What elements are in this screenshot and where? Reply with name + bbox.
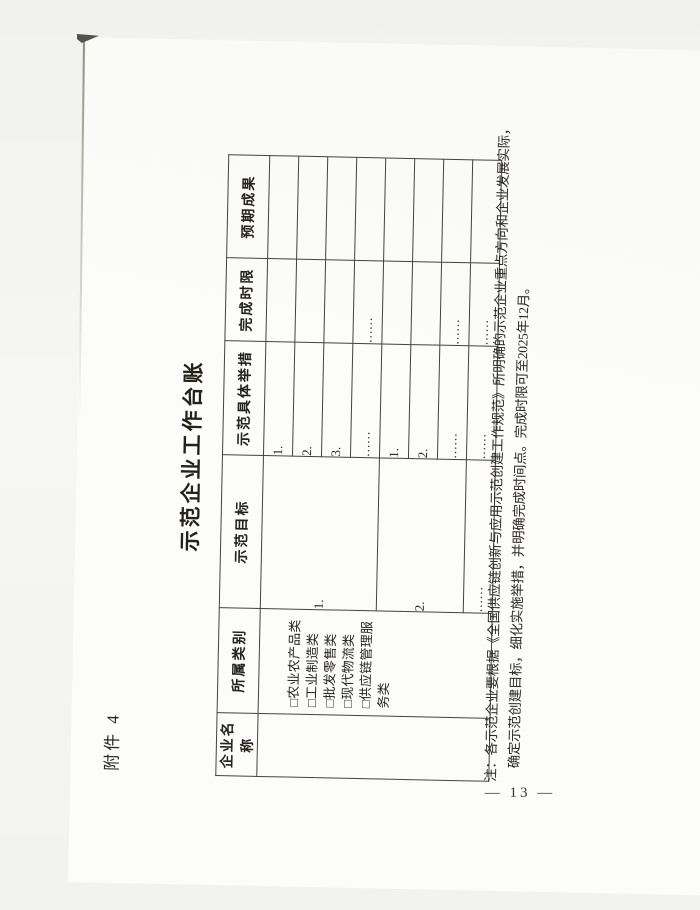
col-header-measures: 示范具体举措 [222, 341, 265, 456]
page-title: 示范企业工作台账 [169, 135, 212, 775]
expected-result-cell [326, 157, 357, 261]
category-option-scm-service: □供应链管理服务类 [357, 611, 395, 709]
category-cell: □农业农产品类 □工业制造类 □批发零售类 □现代物流类 □供应链管理服务类 [258, 608, 492, 718]
measure-cell: 1. [263, 342, 294, 457]
expected-result-cell [413, 159, 444, 263]
goal-1-cell: 1. [260, 456, 379, 611]
expected-result-cell [384, 158, 415, 262]
col-header-goal: 示范目标 [219, 455, 263, 609]
col-header-expected-results: 预期成果 [227, 155, 270, 259]
col-header-enterprise-name: 企业名称 [216, 713, 258, 777]
page-number: — 13 — [452, 785, 588, 802]
col-header-category: 所属类别 [217, 608, 260, 714]
category-option-wholesale-retail: □批发零售类 [321, 610, 341, 707]
scanned-document-canvas: 附件 4 示范企业工作台账 企业名称 所属类别 示范目标 示范具体举措 完成时限… [0, 0, 700, 910]
expected-result-cell [442, 159, 473, 263]
measure-cell: …… [350, 343, 381, 458]
measure-cell: …… [437, 345, 468, 460]
deadline-cell [411, 262, 442, 346]
expected-result-cell [297, 156, 328, 260]
measure-cell: 2. [408, 345, 439, 460]
measure-cell: 3. [321, 343, 352, 458]
deadline-cell [266, 259, 297, 343]
deadline-cell [324, 260, 355, 344]
enterprise-name-cell [257, 713, 490, 781]
measure-cell: 2. [292, 342, 323, 457]
col-header-deadline: 完成时限 [225, 258, 268, 342]
document-page: 附件 4 示范企业工作台账 企业名称 所属类别 示范目标 示范具体举措 完成时限… [68, 37, 700, 896]
category-option-manufacturing: □工业制造类 [303, 610, 323, 707]
deadline-cell [295, 259, 326, 343]
goal-2-cell: 2. [376, 458, 466, 613]
deadline-cell: …… [353, 260, 384, 344]
category-options: □农业农产品类 □工业制造类 □批发零售类 □现代物流类 □供应链管理服务类 [259, 609, 395, 716]
attachment-label: 附件 4 [97, 712, 123, 771]
ledger-table: 企业名称 所属类别 示范目标 示范具体举措 完成时限 预期成果 □农业农产品类 … [215, 154, 502, 782]
category-option-agriculture: □农业农产品类 [285, 610, 305, 707]
deadline-cell: …… [440, 262, 471, 346]
deadline-cell [382, 261, 413, 345]
expected-result-cell [355, 157, 386, 261]
category-option-logistics: □现代物流类 [339, 611, 359, 708]
expected-result-cell [268, 156, 299, 260]
measure-cell: 1. [379, 344, 410, 459]
